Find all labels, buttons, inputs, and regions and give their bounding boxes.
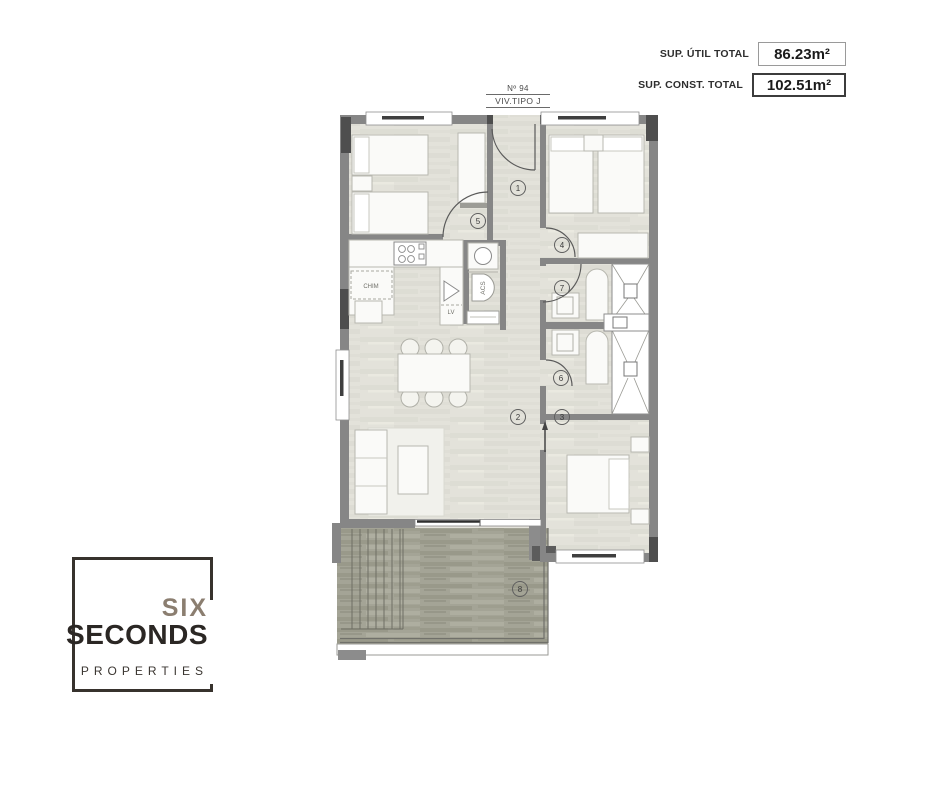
- bathtub-2: [586, 331, 608, 384]
- shelf-bedroom2: [584, 135, 603, 151]
- const-area-value: 102.51m²: [752, 73, 846, 97]
- washer-drum-icon: [475, 248, 492, 265]
- terrace-step: [338, 650, 366, 660]
- sofa: [355, 430, 387, 514]
- area-row-const: SUP. CONST. TOTAL 102.51m²: [638, 73, 846, 97]
- svg-text:1: 1: [516, 184, 521, 193]
- svg-text:3: 3: [560, 413, 565, 422]
- terrace-apron: [337, 644, 548, 655]
- svg-text:2: 2: [516, 413, 521, 422]
- dining-table: [398, 354, 470, 392]
- water-heater-label: ACS: [480, 281, 487, 295]
- dishwasher-label: LV: [448, 310, 455, 316]
- svg-text:5: 5: [476, 217, 481, 226]
- terrace-wall-stub: [332, 523, 341, 563]
- svg-text:7: 7: [560, 284, 565, 293]
- wardrobe-bedroom2: [578, 233, 648, 258]
- chimney-label: CHIM: [363, 284, 378, 290]
- terrace: [332, 519, 556, 660]
- util-area-label: SUP. ÚTIL TOTAL: [660, 48, 749, 60]
- six-seconds-logo: SIX SECONDS PROPERTIES: [72, 557, 213, 692]
- logo-word-seconds: SECONDS: [66, 621, 208, 649]
- fridge: [355, 301, 382, 323]
- bathtub-1: [586, 269, 608, 320]
- svg-text:6: 6: [559, 374, 564, 383]
- floor-plan: CHIM LV ACS 1 2 3 4 5: [330, 106, 672, 668]
- nightstand-1: [352, 176, 372, 191]
- area-row-util: SUP. ÚTIL TOTAL 86.23m²: [660, 42, 846, 66]
- logo-word-properties: PROPERTIES: [81, 665, 208, 677]
- floorplan-page: SUP. ÚTIL TOTAL 86.23m² SUP. CONST. TOTA…: [0, 0, 940, 788]
- terrace-deck: [337, 528, 548, 644]
- const-area-label: SUP. CONST. TOTAL: [638, 79, 743, 91]
- svg-text:8: 8: [518, 585, 523, 594]
- svg-text:4: 4: [560, 241, 565, 250]
- util-area-value: 86.23m²: [758, 42, 846, 66]
- plan-title: Nº 94 VIV.TIPO J: [477, 84, 559, 108]
- nightstand-3a: [631, 437, 649, 452]
- coffee-table: [398, 446, 428, 494]
- logo-word-six: SIX: [162, 596, 208, 621]
- logo-border-gap: [210, 600, 213, 684]
- unit-number: Nº 94: [486, 84, 550, 95]
- area-summary: SUP. ÚTIL TOTAL 86.23m² SUP. CONST. TOTA…: [638, 42, 846, 97]
- nightstand-3b: [631, 509, 649, 524]
